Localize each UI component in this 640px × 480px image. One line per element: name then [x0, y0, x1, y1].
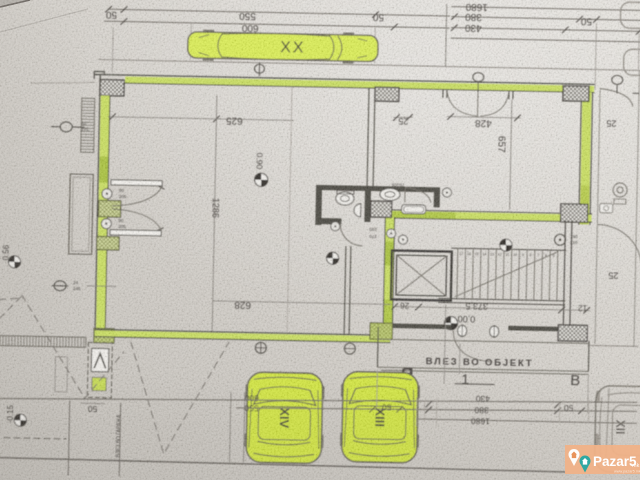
- svg-text:Pazar5: Pazar5: [593, 454, 637, 469]
- svg-text:mk: mk: [632, 463, 640, 469]
- svg-text:www.pazar5.mk: www.pazar5.mk: [614, 470, 640, 474]
